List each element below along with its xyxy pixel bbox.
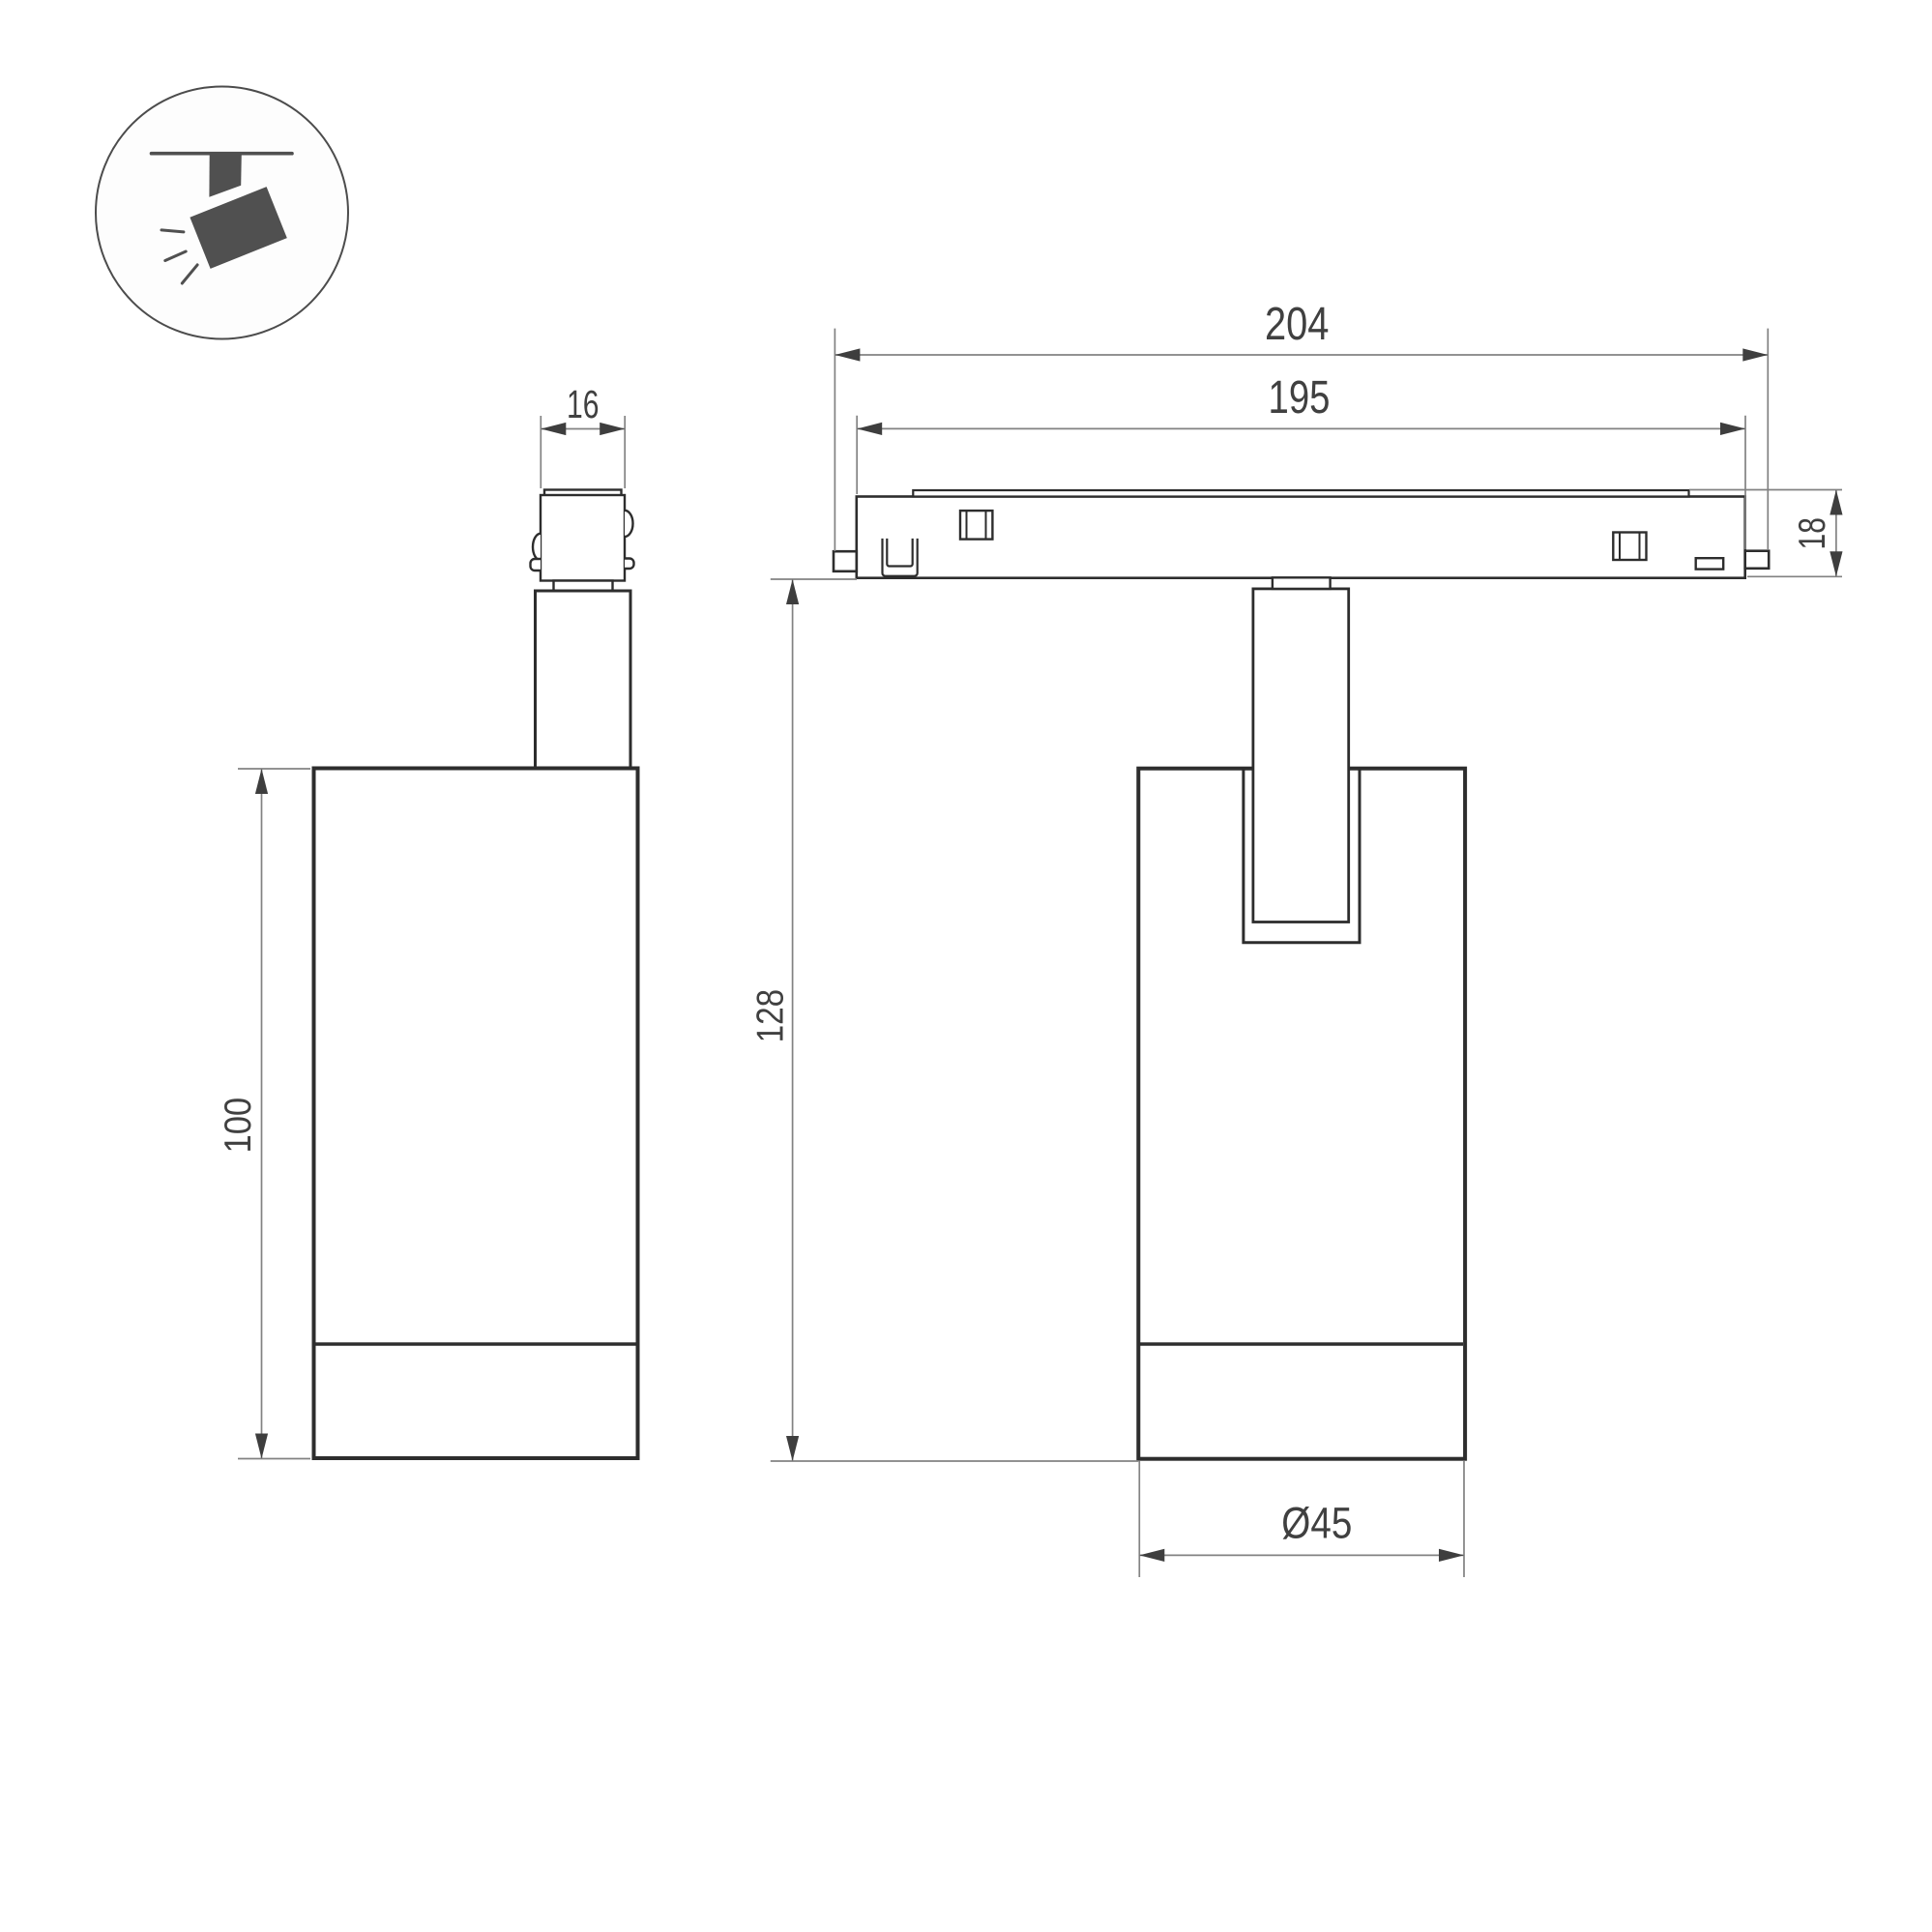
svg-text:195: 195: [1269, 372, 1331, 424]
svg-text:204: 204: [1265, 299, 1330, 350]
svg-text:16: 16: [567, 382, 600, 426]
svg-text:100: 100: [218, 1098, 259, 1154]
svg-text:Ø45: Ø45: [1281, 1498, 1352, 1547]
svg-text:128: 128: [749, 989, 791, 1043]
svg-text:18: 18: [1792, 517, 1833, 549]
